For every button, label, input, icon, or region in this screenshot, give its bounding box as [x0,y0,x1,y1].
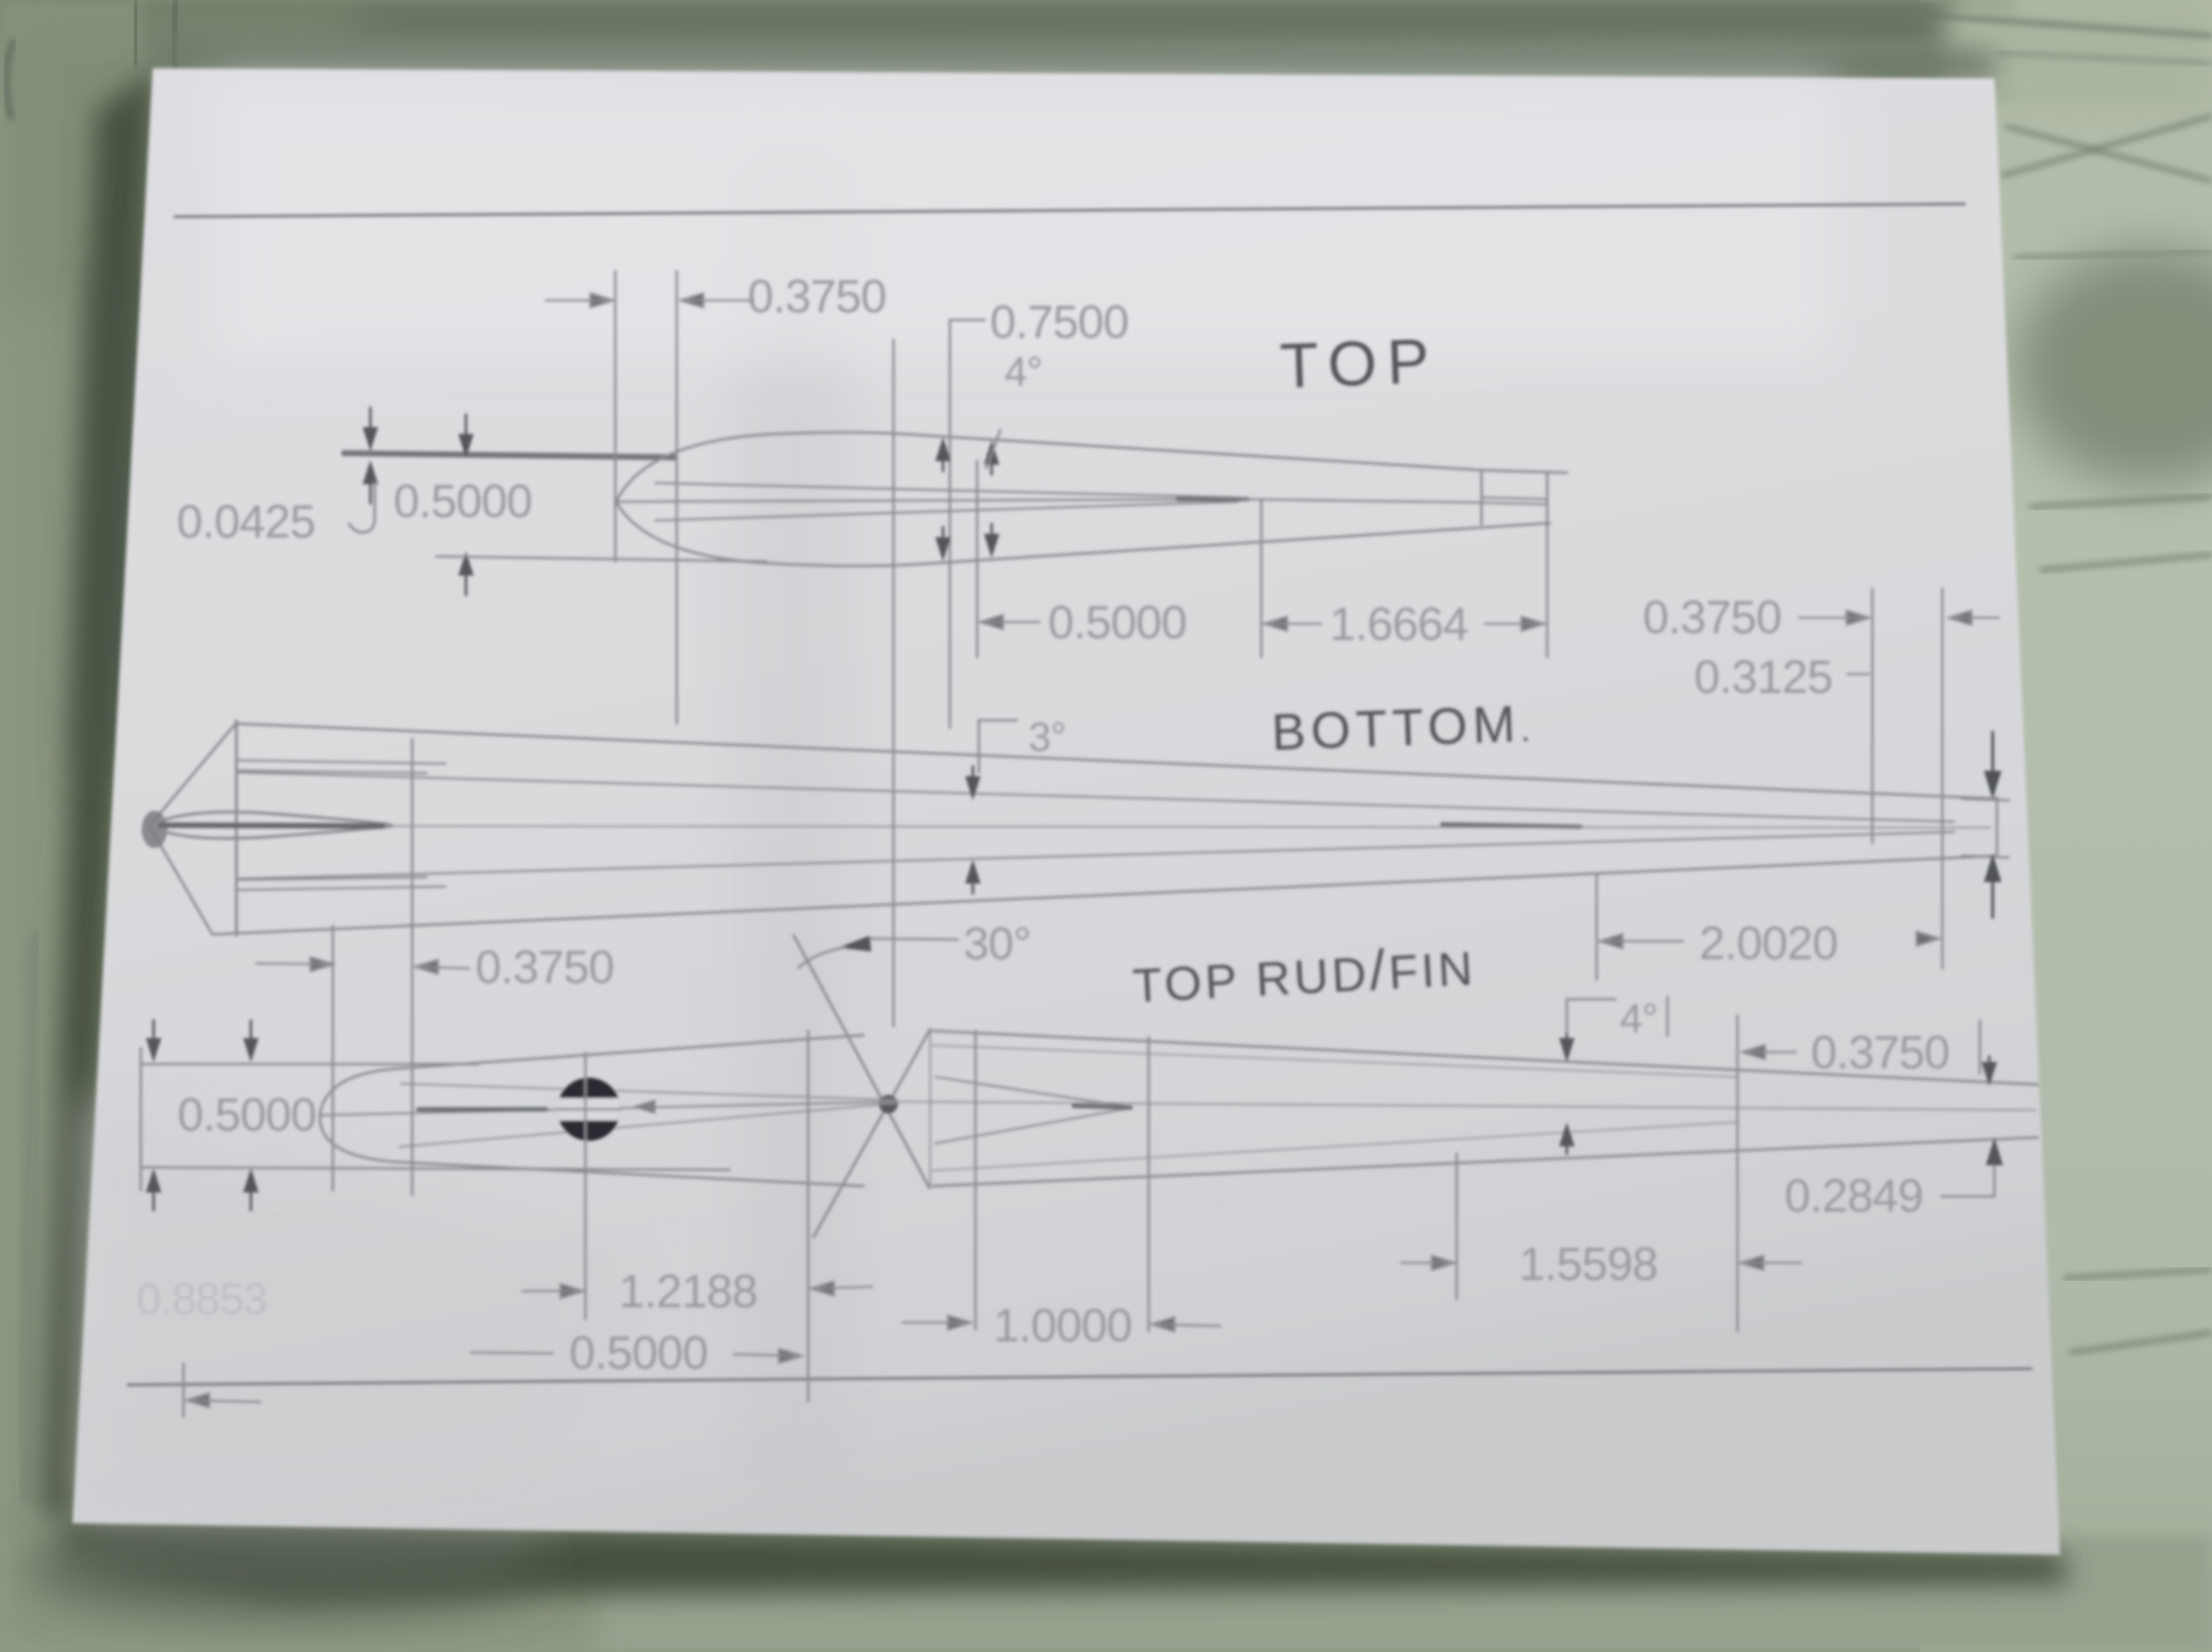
svg-text:0.5000: 0.5000 [178,1088,316,1141]
svg-text:1.5598: 1.5598 [1519,1237,1657,1290]
svg-text:2.0020: 2.0020 [1699,916,1837,969]
svg-text:0.5000: 0.5000 [393,474,532,527]
svg-text:1.2188: 1.2188 [619,1265,757,1318]
svg-text:BOTTOM.: BOTTOM. [1271,695,1536,761]
svg-text:0.3750: 0.3750 [475,940,614,993]
svg-text:0.5000: 0.5000 [569,1326,707,1379]
svg-text:0.7500: 0.7500 [990,295,1128,348]
svg-text:0.3125: 0.3125 [1694,650,1832,703]
svg-text:1.0000: 1.0000 [993,1299,1132,1352]
svg-text:0.3750: 0.3750 [748,270,886,323]
svg-text:0.3750: 0.3750 [1811,1026,1949,1079]
svg-text:3°: 3° [1028,715,1066,760]
svg-text:30°: 30° [963,918,1031,969]
svg-text:1.6664: 1.6664 [1330,597,1468,650]
svg-text:4°: 4° [1004,350,1042,395]
svg-text:TOP: TOP [1278,325,1441,401]
svg-text:0.5000: 0.5000 [1048,596,1186,649]
svg-text:4°: 4° [1620,997,1657,1042]
svg-text:0.3750: 0.3750 [1643,590,1781,643]
svg-text:0.0425: 0.0425 [177,495,315,548]
svg-text:0.8853: 0.8853 [137,1275,267,1324]
svg-text:0.2849: 0.2849 [1784,1169,1923,1222]
